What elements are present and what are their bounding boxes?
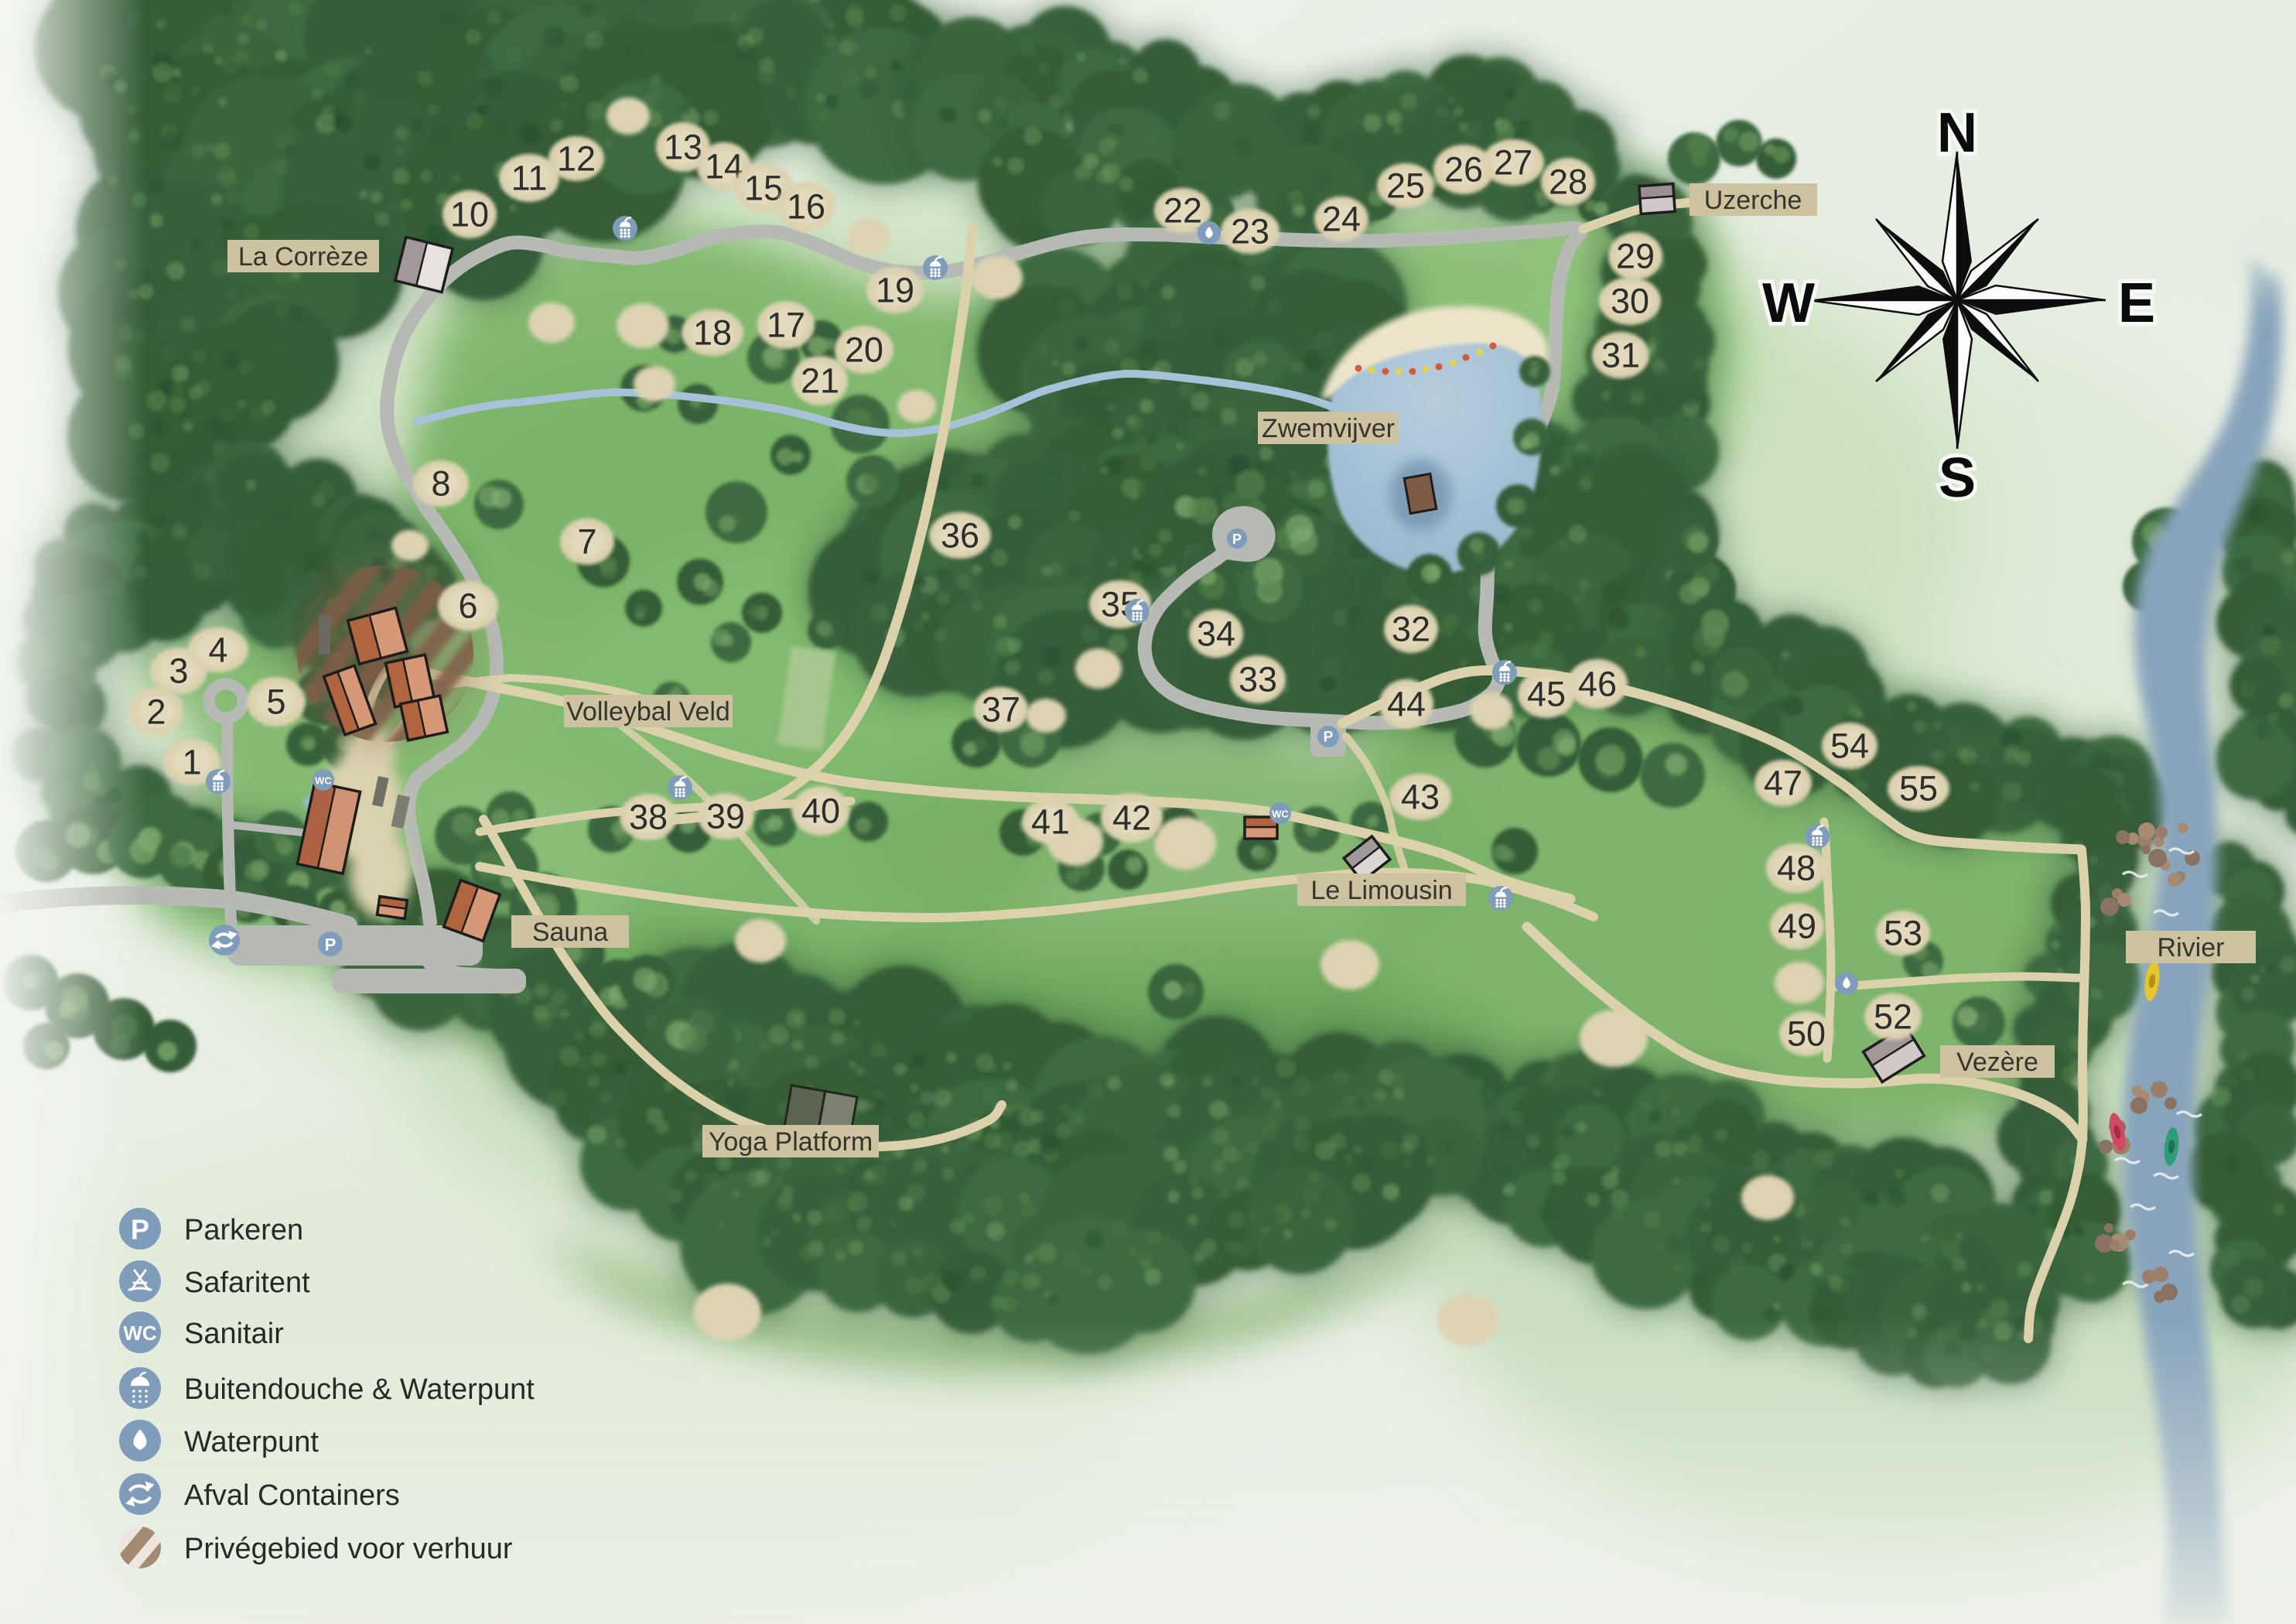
svg-text:Zwemvijver: Zwemvijver bbox=[1262, 414, 1395, 443]
svg-text:46: 46 bbox=[1578, 665, 1617, 704]
svg-text:31: 31 bbox=[1601, 336, 1640, 375]
svg-text:Sanitair: Sanitair bbox=[184, 1318, 284, 1350]
svg-text:6: 6 bbox=[458, 586, 477, 626]
svg-text:52: 52 bbox=[1874, 997, 1912, 1037]
svg-text:39: 39 bbox=[706, 797, 745, 836]
svg-text:Safaritent: Safaritent bbox=[184, 1267, 310, 1299]
svg-text:21: 21 bbox=[801, 361, 839, 401]
svg-text:Privégebied voor verhuur: Privégebied voor verhuur bbox=[184, 1533, 513, 1565]
svg-text:La Corrèze: La Corrèze bbox=[238, 242, 368, 272]
svg-text:53: 53 bbox=[1884, 914, 1922, 953]
svg-text:Waterpunt: Waterpunt bbox=[184, 1426, 319, 1458]
svg-text:30: 30 bbox=[1611, 282, 1649, 321]
svg-text:33: 33 bbox=[1239, 660, 1277, 699]
svg-text:Le Limousin: Le Limousin bbox=[1310, 876, 1452, 905]
svg-text:Rivier: Rivier bbox=[2158, 933, 2225, 962]
svg-text:4: 4 bbox=[208, 631, 227, 670]
svg-text:WC: WC bbox=[315, 775, 332, 787]
svg-text:45: 45 bbox=[1527, 675, 1566, 714]
svg-text:Afval Containers: Afval Containers bbox=[184, 1479, 400, 1512]
svg-text:54: 54 bbox=[1830, 727, 1869, 766]
svg-text:27: 27 bbox=[1494, 143, 1532, 183]
svg-text:18: 18 bbox=[693, 313, 732, 353]
svg-text:Sauna: Sauna bbox=[532, 918, 608, 947]
svg-text:11: 11 bbox=[511, 159, 548, 198]
svg-text:13: 13 bbox=[664, 128, 702, 167]
svg-text:26: 26 bbox=[1444, 150, 1483, 190]
svg-text:19: 19 bbox=[876, 271, 914, 310]
svg-text:38: 38 bbox=[629, 798, 668, 837]
svg-text:Vezère: Vezère bbox=[1956, 1048, 2038, 1077]
svg-text:2: 2 bbox=[146, 692, 166, 732]
svg-text:43: 43 bbox=[1401, 778, 1440, 817]
svg-text:20: 20 bbox=[845, 330, 883, 370]
svg-text:P: P bbox=[1324, 730, 1334, 746]
svg-text:17: 17 bbox=[767, 306, 805, 345]
svg-text:48: 48 bbox=[1777, 849, 1816, 888]
svg-text:50: 50 bbox=[1787, 1014, 1826, 1054]
svg-text:W: W bbox=[1762, 272, 1815, 334]
svg-text:29: 29 bbox=[1616, 237, 1655, 276]
svg-text:WC: WC bbox=[1272, 809, 1289, 820]
svg-text:WC: WC bbox=[123, 1321, 157, 1345]
svg-text:55: 55 bbox=[1899, 769, 1938, 809]
svg-text:40: 40 bbox=[801, 791, 840, 831]
svg-text:Volleybal Veld: Volleybal Veld bbox=[566, 697, 730, 727]
svg-text:47: 47 bbox=[1764, 764, 1802, 803]
svg-text:Uzerche: Uzerche bbox=[1704, 186, 1802, 215]
svg-text:P: P bbox=[1232, 532, 1242, 547]
svg-text:Buitendouche & Waterpunt: Buitendouche & Waterpunt bbox=[184, 1373, 535, 1406]
svg-text:16: 16 bbox=[787, 187, 825, 227]
svg-text:37: 37 bbox=[982, 690, 1020, 730]
svg-text:Parkeren: Parkeren bbox=[184, 1214, 303, 1246]
svg-text:25: 25 bbox=[1386, 166, 1425, 206]
svg-text:Yoga Platform: Yoga Platform bbox=[709, 1127, 873, 1157]
svg-text:1: 1 bbox=[182, 743, 201, 782]
svg-text:23: 23 bbox=[1231, 212, 1269, 251]
svg-text:24: 24 bbox=[1322, 200, 1361, 239]
svg-text:S: S bbox=[1939, 447, 1976, 509]
svg-text:49: 49 bbox=[1778, 907, 1816, 946]
svg-text:5: 5 bbox=[266, 682, 285, 722]
svg-text:12: 12 bbox=[557, 139, 596, 179]
svg-text:7: 7 bbox=[577, 522, 596, 562]
svg-text:15: 15 bbox=[744, 169, 783, 208]
svg-text:P: P bbox=[325, 935, 337, 955]
svg-text:E: E bbox=[2118, 272, 2155, 334]
svg-text:N: N bbox=[1937, 102, 1977, 164]
svg-text:22: 22 bbox=[1163, 191, 1202, 231]
svg-text:3: 3 bbox=[169, 651, 188, 691]
svg-text:32: 32 bbox=[1392, 610, 1430, 649]
svg-text:28: 28 bbox=[1549, 162, 1587, 202]
svg-text:10: 10 bbox=[450, 195, 489, 234]
svg-text:8: 8 bbox=[431, 464, 450, 504]
svg-text:42: 42 bbox=[1112, 798, 1151, 838]
svg-text:34: 34 bbox=[1197, 614, 1235, 654]
svg-text:P: P bbox=[131, 1214, 149, 1246]
svg-text:44: 44 bbox=[1387, 685, 1426, 724]
svg-text:41: 41 bbox=[1031, 802, 1070, 842]
svg-text:36: 36 bbox=[941, 516, 979, 556]
